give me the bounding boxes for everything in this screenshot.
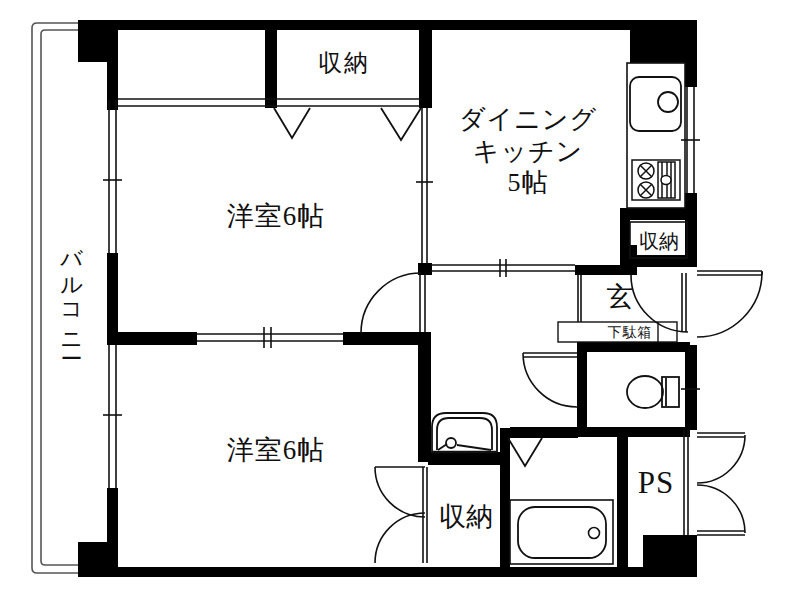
label-shoe-cabinet: 下駄箱 (608, 324, 653, 341)
closet-bottom-double-door-icon (375, 467, 427, 563)
label-pipe-space: PS (638, 464, 674, 502)
room-label-bedroom2: 洋室6帖 (227, 434, 326, 467)
room-label-dining-kitchen: ダイニング キッチン 5帖 (459, 104, 597, 199)
label-closet-bottom: 収納 (439, 501, 493, 534)
closet-top-folding-doors-icon (274, 108, 421, 140)
ps-double-door-icon (697, 433, 745, 535)
gas-stove-icon (632, 160, 680, 200)
room-label-bedroom1: 洋室6帖 (227, 200, 326, 233)
kitchen-sink-icon (630, 77, 681, 131)
floorplan-drawing (0, 0, 800, 600)
thin-partitions (118, 99, 688, 535)
label-closet-kitchen: 収納 (639, 229, 679, 253)
bedroom1-door-icon (361, 273, 425, 333)
walls (78, 20, 697, 577)
balcony-window-bedroom2-icon (103, 345, 122, 488)
balcony-window-bedroom1-icon (103, 100, 122, 253)
bathroom-folding-door-icon (508, 438, 542, 466)
toilet-door-icon (523, 353, 577, 407)
washbasin-icon (432, 413, 497, 452)
label-balcony: バルコニー (58, 234, 85, 349)
floor-plan: 洋室6帖 洋室6帖 ダイニング キッチン 5帖 収納 収納 収納 玄 下駄箱 P… (0, 0, 800, 600)
label-entrance: 玄 (607, 281, 634, 314)
bathtub-icon (510, 500, 613, 564)
toilet-icon (627, 376, 679, 408)
label-closet-top: 収納 (318, 49, 370, 78)
